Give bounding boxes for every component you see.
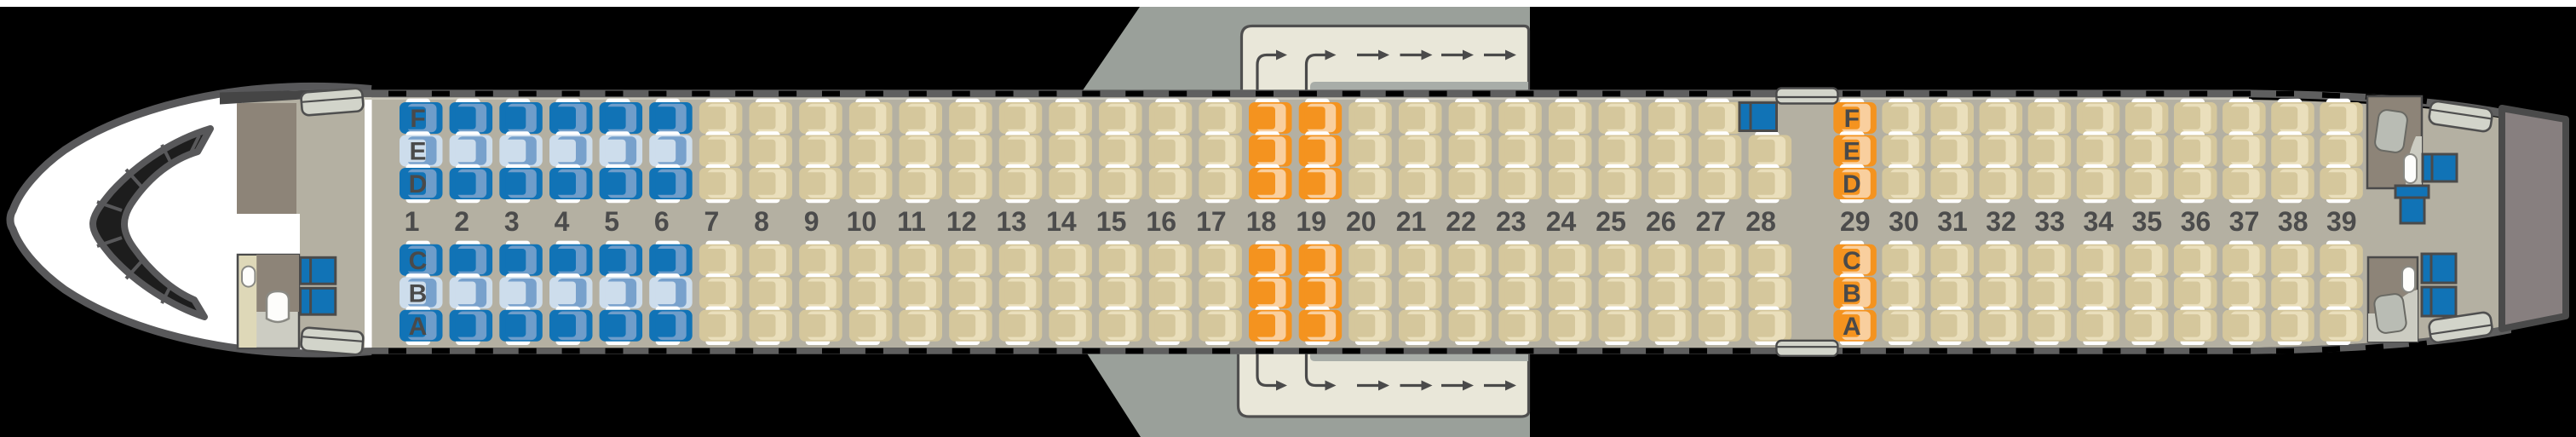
svg-text:30: 30 [1889,206,1919,237]
svg-text:2: 2 [454,206,469,237]
svg-text:23: 23 [1496,206,1527,237]
svg-text:7: 7 [704,206,720,237]
svg-text:22: 22 [1446,206,1476,237]
svg-text:E: E [409,138,426,166]
svg-text:13: 13 [997,206,1027,237]
svg-text:D: D [409,170,428,198]
svg-text:6: 6 [654,206,670,237]
svg-text:D: D [1843,170,1861,198]
svg-text:5: 5 [604,206,619,237]
svg-text:20: 20 [1346,206,1377,237]
svg-text:38: 38 [2278,206,2309,237]
svg-text:14: 14 [1046,206,1077,237]
svg-text:F: F [1844,105,1860,133]
svg-text:8: 8 [754,206,769,237]
svg-text:36: 36 [2181,206,2211,237]
svg-text:C: C [409,247,428,275]
svg-text:E: E [1843,138,1860,166]
svg-text:12: 12 [946,206,977,237]
svg-text:29: 29 [1840,206,1871,237]
svg-text:A: A [409,313,428,341]
svg-text:34: 34 [2084,206,2114,237]
svg-text:33: 33 [2034,206,2065,237]
svg-text:24: 24 [1546,206,1577,237]
svg-text:4: 4 [555,206,570,237]
svg-text:16: 16 [1146,206,1176,237]
svg-text:18: 18 [1246,206,1277,237]
svg-text:A: A [1843,313,1861,341]
svg-text:25: 25 [1596,206,1626,237]
svg-text:17: 17 [1196,206,1227,237]
svg-text:26: 26 [1646,206,1676,237]
svg-text:37: 37 [2229,206,2260,237]
svg-text:32: 32 [1986,206,2016,237]
svg-text:B: B [1843,279,1861,308]
svg-text:31: 31 [1937,206,1968,237]
svg-text:3: 3 [504,206,520,237]
svg-text:28: 28 [1745,206,1776,237]
svg-text:39: 39 [2326,206,2357,237]
svg-text:1: 1 [405,206,420,237]
svg-text:10: 10 [847,206,877,237]
svg-text:F: F [410,105,425,133]
svg-text:C: C [1843,247,1861,275]
svg-text:19: 19 [1296,206,1326,237]
svg-text:21: 21 [1396,206,1427,237]
svg-text:9: 9 [804,206,819,237]
svg-text:11: 11 [897,206,926,237]
svg-text:B: B [409,279,428,308]
svg-text:35: 35 [2132,206,2163,237]
svg-text:15: 15 [1096,206,1127,237]
svg-text:27: 27 [1696,206,1727,237]
